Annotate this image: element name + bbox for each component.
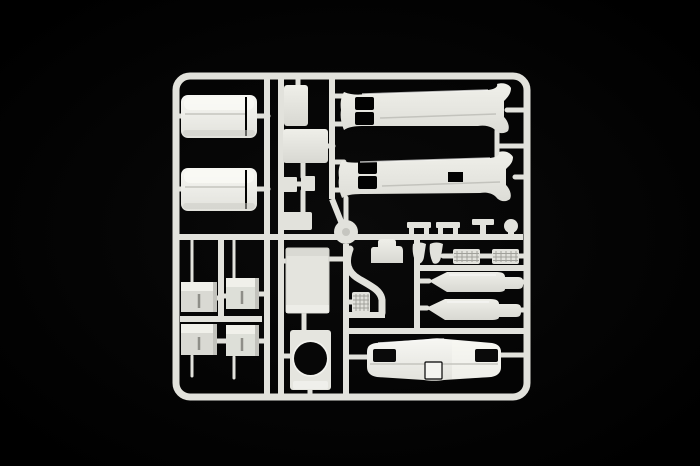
photo-stage — [0, 0, 700, 466]
round-opening-hole — [294, 342, 327, 375]
license-plate-tab — [425, 362, 442, 379]
part-rounded-box-1 — [181, 95, 257, 138]
part-bracket-3 — [181, 324, 217, 355]
bumper-light-recess-right — [475, 349, 498, 362]
part-bracket-1 — [181, 282, 217, 312]
hub-disc — [334, 220, 358, 244]
part-bracket-2 — [226, 278, 259, 309]
bumper-light-recess-left — [373, 349, 396, 362]
part-grille-step-1 — [453, 249, 480, 264]
part-small-square — [283, 129, 328, 163]
hatch-opening — [448, 172, 463, 182]
window-opening — [355, 97, 374, 110]
part-bracket-4 — [226, 325, 259, 356]
sprue-illustration — [0, 0, 700, 466]
part-small-rect-vertical — [284, 85, 308, 126]
part-front-bumper — [367, 338, 501, 381]
part-rounded-box-2 — [181, 168, 257, 211]
part-flat-panel — [286, 248, 329, 313]
window-opening — [355, 112, 374, 125]
part-round-opening-plate — [290, 330, 331, 390]
part-ribbed-grille — [352, 292, 370, 313]
part-grille-step-2 — [492, 249, 519, 264]
part-small-rect-horizontal — [281, 212, 312, 230]
window-opening — [358, 161, 377, 174]
window-opening — [358, 176, 377, 189]
